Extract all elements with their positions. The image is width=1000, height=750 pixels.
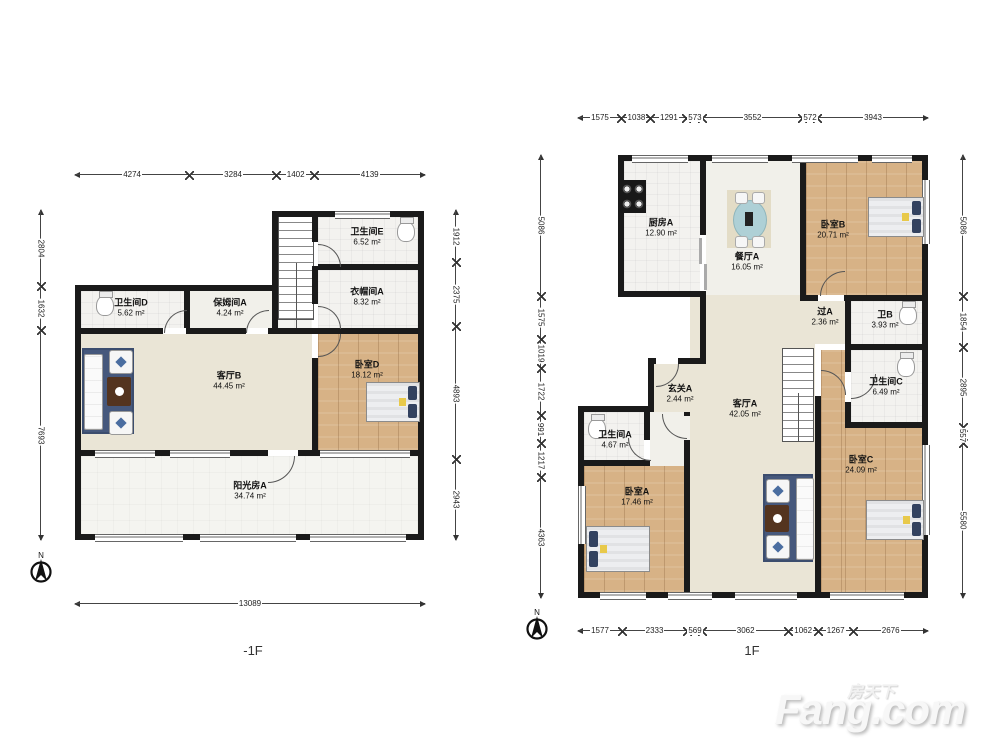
floor-label-b1: -1F	[243, 643, 263, 658]
dim-segment: 5580	[956, 443, 969, 598]
dim-value: 1019	[536, 344, 545, 364]
pillow	[912, 522, 921, 536]
room-name: 玄关A	[666, 383, 693, 395]
dim-value: 991	[536, 422, 545, 437]
dim-segment: 3062	[703, 624, 788, 637]
dim-value: 3284	[223, 170, 243, 179]
pillow-accent	[903, 516, 910, 524]
dim-value: 1722	[536, 382, 545, 402]
dimension-line-left: 280416327693	[34, 210, 47, 540]
room-label-bedroom-b: 卧室B 20.71 m²	[817, 219, 849, 242]
dim-segment: 569	[687, 624, 703, 637]
room-area: 6.52 m²	[350, 238, 383, 249]
dim-value: 1291	[659, 113, 679, 122]
dining-chair	[735, 192, 748, 204]
dim-segment: 1038	[622, 111, 651, 124]
room-label-bathroom-e: 卫生间E 6.52 m²	[350, 226, 383, 249]
window	[872, 155, 912, 163]
window	[200, 534, 296, 542]
dim-value: 2333	[645, 626, 665, 635]
pillow	[408, 386, 417, 400]
wall	[618, 291, 706, 297]
bed-d	[366, 382, 420, 422]
dim-value: 7693	[36, 425, 45, 445]
dim-segment: 7693	[34, 331, 47, 540]
dim-value: 1062	[793, 626, 813, 635]
dim-value: 3062	[736, 626, 756, 635]
pillow	[912, 219, 921, 233]
wall	[700, 291, 706, 364]
dim-segment: 1632	[34, 286, 47, 330]
pillow	[912, 504, 921, 518]
room-name: 卫生间D	[114, 297, 148, 309]
dim-value: 573	[687, 113, 702, 122]
wall	[845, 422, 922, 428]
room-area: 8.32 m²	[350, 298, 384, 309]
dim-segment: 4139	[314, 168, 425, 181]
dimension-line-top: 4274328414024139	[75, 168, 425, 181]
dim-segment: 1912	[449, 210, 462, 262]
room-label-bath-b: 卫B 3.93 m²	[871, 309, 898, 332]
sofa	[796, 478, 814, 560]
dim-value: 1575	[536, 308, 545, 328]
room-name: 卧室D	[351, 359, 383, 371]
wall	[800, 161, 806, 301]
room-label-bedroom-a: 卧室A 17.46 m²	[621, 486, 653, 509]
room-area: 16.05 m²	[731, 263, 763, 274]
window	[632, 155, 688, 163]
dimension-line-bottom: 13089	[75, 597, 425, 610]
wall	[845, 297, 851, 344]
dim-segment: 991	[534, 416, 547, 443]
window	[310, 534, 406, 542]
room-area: 17.46 m²	[621, 498, 653, 509]
dim-value: 5086	[958, 216, 967, 236]
pillow-accent	[399, 398, 406, 406]
watermark-en-logo: Fang.com	[775, 686, 965, 734]
wall	[186, 328, 246, 334]
room-area: 18.12 m²	[351, 371, 383, 382]
dim-segment: 1402	[277, 168, 314, 181]
window	[95, 534, 183, 542]
room-area: 6.49 m²	[869, 388, 903, 399]
dim-segment: 4274	[75, 168, 189, 181]
wall	[678, 358, 706, 364]
stairs-1f	[782, 348, 814, 442]
stairs-b1	[278, 214, 314, 320]
room-area: 2.36 m²	[811, 318, 838, 329]
sliding-door	[699, 238, 702, 264]
toilet-icon	[899, 305, 917, 325]
bed-c	[866, 500, 924, 540]
room-label-kitchen-a: 厨房A 12.90 m²	[645, 217, 677, 240]
dim-value: 4893	[451, 383, 460, 403]
room-label-cloakroom-a: 衣帽间A 8.32 m²	[350, 286, 384, 309]
dimension-line-right: 5086185428955575580	[956, 155, 969, 598]
floorplan-canvas: 卫生间E 6.52 m² 衣帽间A 8.32 m² 卫生间D 5.62 m² 保…	[0, 0, 1000, 750]
room-label-bathroom-c: 卫生间C 6.49 m²	[869, 376, 903, 399]
window	[335, 211, 390, 219]
room-area: 4.24 m²	[213, 309, 247, 320]
wall	[584, 460, 650, 466]
dim-value: 557	[958, 428, 967, 443]
compass-icon: N	[522, 607, 552, 645]
wall	[75, 285, 81, 540]
sliding-door	[704, 264, 707, 290]
floor-label-1f: 1F	[744, 643, 759, 658]
room-area: 3.93 m²	[871, 321, 898, 332]
wall	[312, 211, 318, 242]
dim-segment: 3943	[818, 111, 928, 124]
armchair	[766, 535, 790, 559]
sofa	[84, 354, 103, 430]
dim-value: 3552	[743, 113, 763, 122]
room-name: 卧室A	[621, 486, 653, 498]
dimension-line-bottom: 157723335693062106212672676	[578, 624, 928, 637]
pillow-accent	[902, 213, 909, 221]
dim-segment: 2333	[622, 624, 687, 637]
room-label-bedroom-c: 卧室C 24.09 m²	[845, 454, 877, 477]
window	[792, 155, 858, 163]
wall	[268, 328, 318, 334]
toilet-icon	[897, 356, 915, 377]
dim-segment: 1062	[788, 624, 818, 637]
window	[95, 450, 155, 458]
room-label-bathroom-d: 卫生间D 5.62 m²	[114, 297, 148, 320]
dim-value: 2804	[36, 238, 45, 258]
room-label-living-b: 客厅B 44.45 m²	[213, 370, 245, 393]
dim-value: 5086	[536, 216, 545, 236]
room-name: 卧室C	[845, 454, 877, 466]
wall	[845, 344, 922, 350]
stove-icon	[620, 180, 646, 213]
dim-value: 5580	[958, 511, 967, 531]
dim-segment: 3552	[703, 111, 802, 124]
dim-segment: 1291	[651, 111, 687, 124]
dim-segment: 2676	[853, 624, 928, 637]
dim-segment: 13089	[75, 597, 425, 610]
dim-segment: 1854	[956, 296, 969, 347]
dim-value: 1632	[36, 299, 45, 319]
dimension-line-right: 1912237548932943	[449, 210, 462, 540]
room-area: 42.05 m²	[729, 410, 761, 421]
dining-chair	[752, 236, 765, 248]
wall	[272, 211, 278, 334]
wall	[806, 295, 818, 301]
room-label-living-a: 客厅A 42.05 m²	[729, 398, 761, 421]
armchair	[109, 411, 133, 435]
room-name: 厨房A	[645, 217, 677, 229]
dim-value: 1267	[826, 626, 846, 635]
window	[320, 450, 410, 458]
dim-segment: 2943	[449, 460, 462, 540]
dim-segment: 1722	[534, 368, 547, 416]
stairs-divider	[296, 263, 297, 333]
window	[830, 592, 904, 600]
dimension-line-top: 15751038129157335525723943	[578, 111, 928, 124]
room-name: 保姆间A	[213, 297, 247, 309]
room-label-entry-a: 玄关A 2.44 m²	[666, 383, 693, 406]
room-label-nanny-a: 保姆间A 4.24 m²	[213, 297, 247, 320]
room-area: 12.90 m²	[645, 229, 677, 240]
room-area: 2.44 m²	[666, 395, 693, 406]
coffee-table	[107, 377, 131, 406]
room-name: 餐厅A	[731, 251, 763, 263]
dim-value: 1575	[590, 113, 610, 122]
armchair	[109, 350, 133, 374]
wall	[648, 358, 654, 412]
room-name: 客厅B	[213, 370, 245, 382]
dim-value: 1217	[536, 450, 545, 470]
room-label-bathroom-a: 卫生间A 4.67 m²	[598, 429, 632, 452]
dim-segment: 4893	[449, 327, 462, 460]
toilet-icon	[397, 221, 415, 242]
dim-segment: 2375	[449, 262, 462, 327]
dim-value: 2375	[451, 284, 460, 304]
dining-chair	[752, 192, 765, 204]
compass-icon: N	[26, 550, 56, 588]
wall	[815, 396, 821, 592]
room-label-bedroom-d: 卧室D 18.12 m²	[351, 359, 383, 382]
room-label-dining-a: 餐厅A 16.05 m²	[731, 251, 763, 274]
window	[712, 155, 768, 163]
wall	[312, 266, 318, 304]
dim-segment: 3284	[189, 168, 277, 181]
dining-centerpiece	[745, 212, 753, 226]
dim-segment: 5086	[534, 155, 547, 296]
dim-segment: 2895	[956, 347, 969, 427]
dim-segment: 1577	[578, 624, 622, 637]
dim-value: 1402	[286, 170, 306, 179]
dim-segment: 5086	[956, 155, 969, 296]
room-name: 卧室B	[817, 219, 849, 231]
room-name: 衣帽间A	[350, 286, 384, 298]
window	[668, 592, 712, 600]
toilet-icon	[96, 295, 114, 316]
dim-segment: 557	[956, 428, 969, 443]
room-name: 客厅A	[729, 398, 761, 410]
pillow	[408, 404, 417, 418]
room-name: 卫生间A	[598, 429, 632, 441]
room-area: 34.74 m²	[233, 492, 267, 503]
window	[170, 450, 230, 458]
dining-chair	[735, 236, 748, 248]
dim-value: 13089	[238, 599, 262, 608]
dim-segment: 1217	[534, 443, 547, 477]
dim-value: 4363	[536, 528, 545, 548]
dim-segment: 2804	[34, 210, 47, 286]
room-name: 卫生间C	[869, 376, 903, 388]
pillow-accent	[600, 545, 607, 553]
armchair	[766, 479, 790, 503]
room-name: 卫生间E	[350, 226, 383, 238]
dim-value: 4139	[360, 170, 380, 179]
room-area: 4.67 m²	[598, 441, 632, 452]
dim-segment: 1575	[534, 296, 547, 340]
pillow	[912, 201, 921, 215]
pillow	[589, 551, 598, 567]
wall	[700, 161, 706, 235]
room-area: 24.09 m²	[845, 466, 877, 477]
stairs-divider	[798, 393, 799, 441]
wall	[578, 406, 654, 412]
dim-value: 2895	[958, 378, 967, 398]
room-name: 阳光房A	[233, 480, 267, 492]
compass-north-letter: N	[38, 551, 44, 560]
room-area: 20.71 m²	[817, 231, 849, 242]
compass-north-letter: N	[534, 608, 540, 617]
wall	[644, 412, 650, 440]
dim-value: 569	[687, 626, 702, 635]
dim-value: 1038	[627, 113, 647, 122]
wall	[845, 350, 851, 372]
dim-segment: 572	[802, 111, 818, 124]
dimension-line-left: 508615751019172299112174363	[534, 155, 547, 598]
pillow	[589, 531, 598, 547]
dim-segment: 1019	[534, 340, 547, 368]
dim-value: 2676	[881, 626, 901, 635]
bed-b	[868, 197, 924, 237]
window	[600, 592, 646, 600]
dim-value: 572	[802, 113, 817, 122]
coffee-table	[765, 505, 789, 532]
bed-a	[586, 526, 650, 572]
room-name: 卫B	[871, 309, 898, 321]
wall	[418, 211, 424, 540]
dim-value: 1577	[590, 626, 610, 635]
room-area: 5.62 m²	[114, 309, 148, 320]
window	[578, 486, 586, 544]
room-name: 过A	[811, 306, 838, 318]
dim-value: 4274	[122, 170, 142, 179]
room-label-sunroom-a: 阳光房A 34.74 m²	[233, 480, 267, 503]
room-area: 44.45 m²	[213, 382, 245, 393]
room-label-pass-a: 过A 2.36 m²	[811, 306, 838, 329]
dim-value: 2943	[451, 490, 460, 510]
wall	[81, 328, 163, 334]
wall	[312, 358, 318, 452]
dim-segment: 573	[687, 111, 703, 124]
dim-value: 3943	[863, 113, 883, 122]
wall	[618, 155, 624, 297]
dim-segment: 4363	[534, 477, 547, 598]
dim-value: 1912	[451, 226, 460, 246]
dim-segment: 1267	[818, 624, 853, 637]
wall	[684, 440, 690, 592]
dim-value: 1854	[958, 312, 967, 332]
watermark: 房天下 Fang.com	[775, 678, 990, 742]
window	[735, 592, 797, 600]
dim-segment: 1575	[578, 111, 622, 124]
